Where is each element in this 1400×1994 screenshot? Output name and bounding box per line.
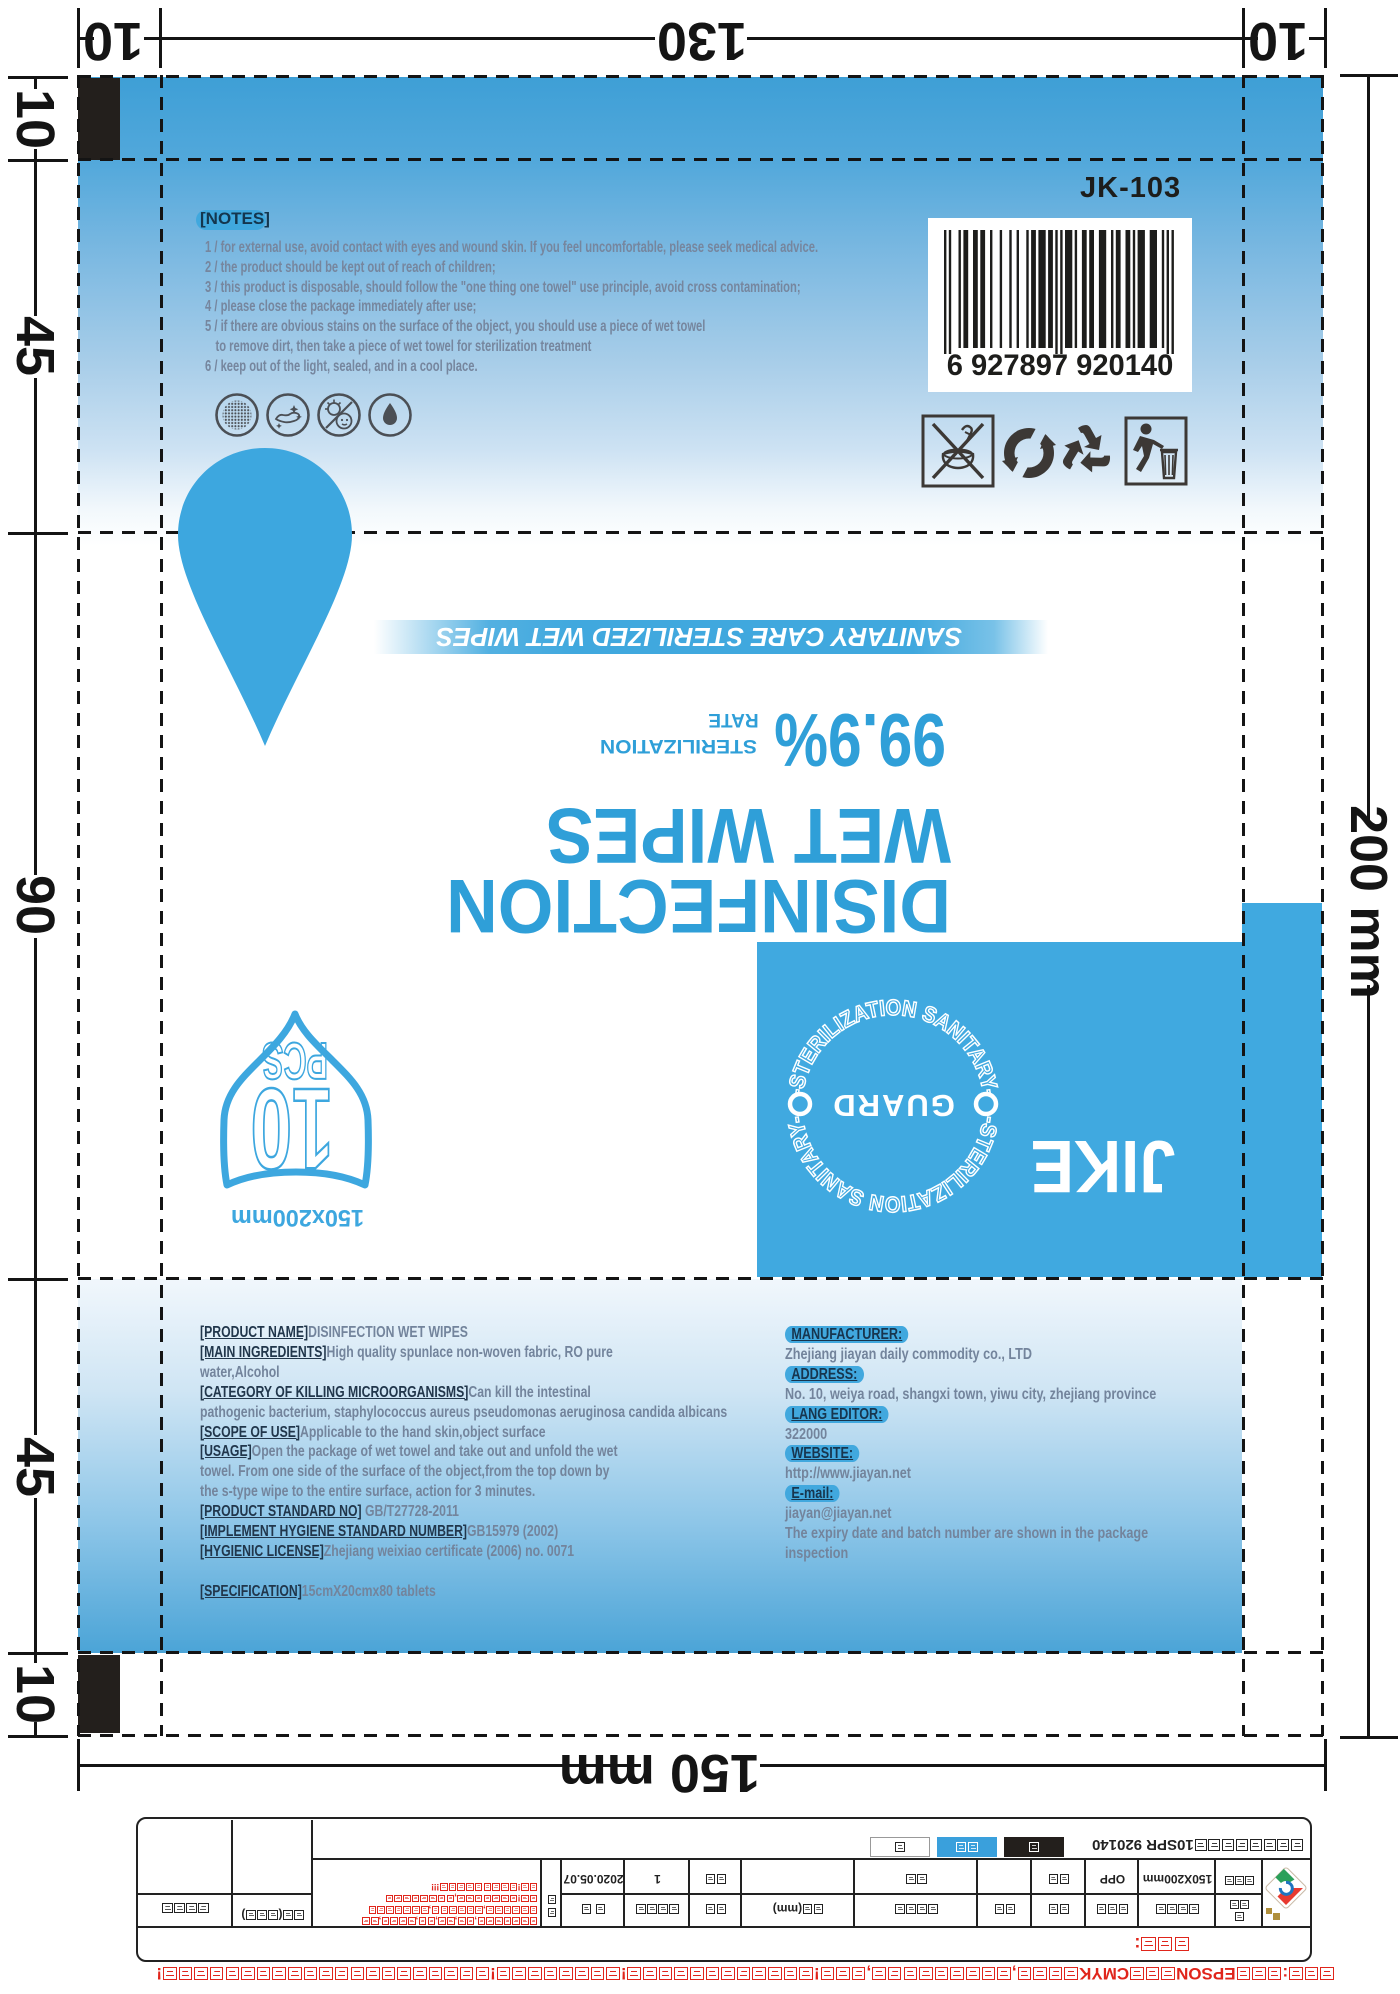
svg-text:99.9%: 99.9% (774, 702, 946, 782)
svg-text:RATE: RATE (708, 709, 758, 730)
svg-text:DISINFECTION: DISINFECTION (446, 863, 951, 946)
svg-text:-STERILIZATION SANITARY-: -STERILIZATION SANITARY- (783, 1115, 1004, 1217)
svg-text:10: 10 (251, 1064, 334, 1192)
svg-text:STERILIZATION: STERILIZATION (600, 735, 757, 756)
svg-text:GUARD: GUARD (831, 1088, 955, 1123)
svg-text:-STERILIZATION SANITARY-: -STERILIZATION SANITARY- (783, 995, 1004, 1097)
svg-text:150x200mm: 150x200mm (231, 1204, 364, 1231)
svg-text:JIKE: JIKE (1031, 1136, 1176, 1200)
